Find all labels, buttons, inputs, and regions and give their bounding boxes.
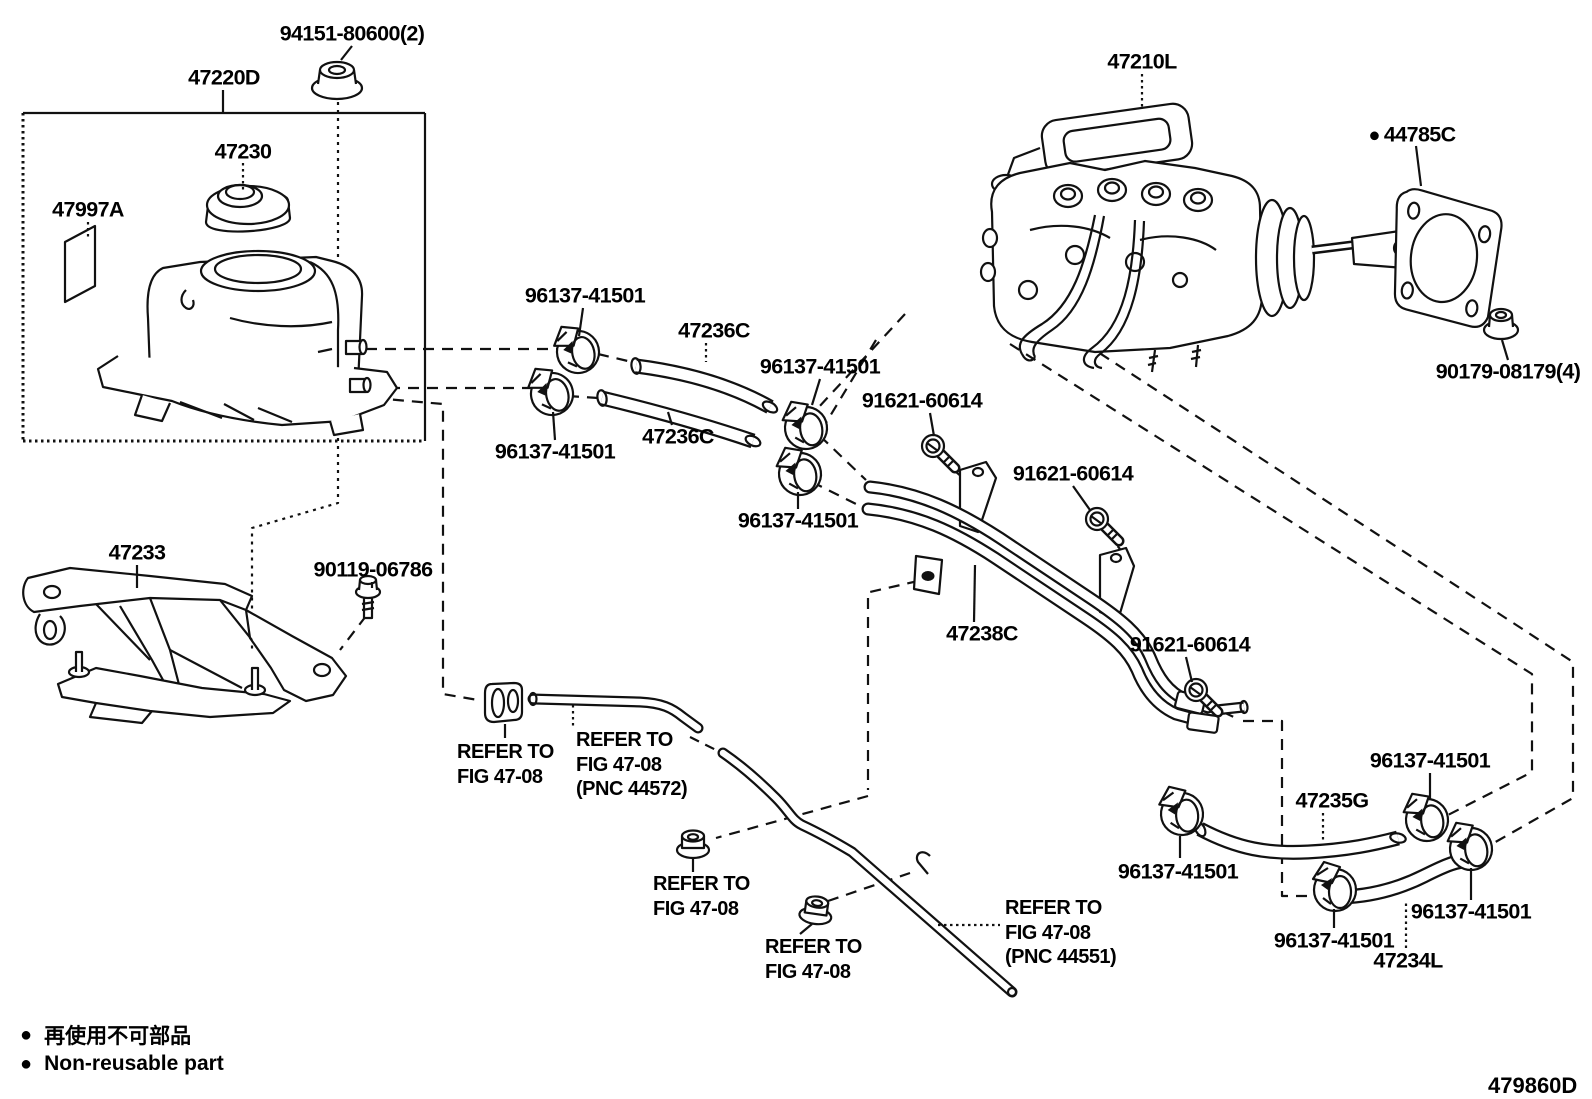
refer-note-line: REFER TO	[765, 935, 862, 960]
part-label-47220D: 47220D	[188, 66, 260, 91]
legend-row-jp: ● 再使用不可部品	[20, 1020, 191, 1050]
refer-note-line: FIG 47-08	[765, 960, 862, 985]
grommet-clip-drawing	[485, 683, 522, 722]
refer-note-line: FIG 47-08	[576, 753, 687, 778]
part-label-96137-41501-b: 96137-41501	[760, 355, 880, 380]
part-label-96137-41501-e: 96137-41501	[1370, 749, 1490, 774]
parts-diagram-page: 94151-80600(2) 47220D 47230 47997A 47210…	[0, 0, 1592, 1099]
part-label-96137-41501-h: 96137-41501	[1411, 900, 1531, 925]
part-label-47236C-a: 47236C	[678, 319, 750, 344]
part-label-91621-60614-a: 91621-60614	[862, 389, 982, 414]
part-label-96137-41501-c: 96137-41501	[495, 440, 615, 465]
label-plate-47997A-drawing	[65, 226, 95, 302]
refer-note-3: REFER TO FIG 47-08	[653, 872, 750, 921]
part-label-96137-41501-d: 96137-41501	[738, 509, 858, 534]
hose-47234L-drawing	[1337, 854, 1472, 905]
non-reusable-marker: ●	[1368, 125, 1379, 145]
part-label-47236C-b: 47236C	[642, 425, 714, 450]
part-label-47238C: 47238C	[946, 622, 1018, 647]
refer-note-line: FIG 47-08	[1005, 921, 1116, 946]
part-label-44785C: ●44785C	[1368, 123, 1455, 148]
part-label-90119-06786: 90119-06786	[314, 558, 433, 583]
part-label-96137-41501-f: 96137-41501	[1118, 860, 1238, 885]
part-label-47233: 47233	[109, 541, 166, 566]
part-label-47234L: 47234L	[1373, 949, 1442, 974]
refer-note-line: FIG 47-08	[653, 897, 750, 922]
refer-note-line: REFER TO	[457, 740, 554, 765]
legend-row-en: ● Non-reusable part	[20, 1052, 224, 1076]
non-reusable-marker: ●	[20, 1054, 32, 1074]
part-label-90179-08179: 90179-08179(4)	[1436, 360, 1581, 385]
part-label-47210L: 47210L	[1107, 50, 1176, 75]
part-label-91621-60614-b: 91621-60614	[1013, 462, 1133, 487]
refer-note-1: REFER TO FIG 47-08	[457, 740, 554, 789]
refer-note-4: REFER TO FIG 47-08	[765, 935, 862, 984]
part-label-47235G: 47235G	[1296, 789, 1369, 814]
bracket-47233-drawing	[23, 568, 346, 723]
refer-note-line: (PNC 44572)	[576, 777, 687, 802]
nut-94151-drawing	[312, 62, 362, 99]
non-reusable-marker: ●	[20, 1025, 32, 1045]
part-label-94151-80600: 94151-80600(2)	[280, 22, 425, 47]
refer-note-line: REFER TO	[576, 728, 687, 753]
refer-note-2: REFER TO FIG 47-08 (PNC 44572)	[576, 728, 687, 802]
part-label-47230: 47230	[215, 140, 272, 165]
refer-note-line: FIG 47-08	[457, 765, 554, 790]
refer-note-line: REFER TO	[1005, 896, 1116, 921]
reservoir-drawing	[98, 251, 397, 435]
hose-47235G-drawing	[1192, 820, 1406, 852]
refer-note-line: REFER TO	[653, 872, 750, 897]
diagram-code: 479860D	[1488, 1073, 1577, 1099]
part-label-91621-60614-c: 91621-60614	[1130, 633, 1250, 658]
legend-text-jp: 再使用不可部品	[44, 1020, 191, 1050]
cap-47230-drawing	[206, 185, 290, 232]
legend-text-en: Non-reusable part	[44, 1052, 224, 1076]
refer-note-5: REFER TO FIG 47-08 (PNC 44551)	[1005, 896, 1116, 970]
part-label-47997A: 47997A	[52, 198, 124, 223]
refer-note-line: (PNC 44551)	[1005, 945, 1116, 970]
gasket-44785C-drawing	[1385, 187, 1504, 328]
part-label-96137-41501-a: 96137-41501	[525, 284, 645, 309]
